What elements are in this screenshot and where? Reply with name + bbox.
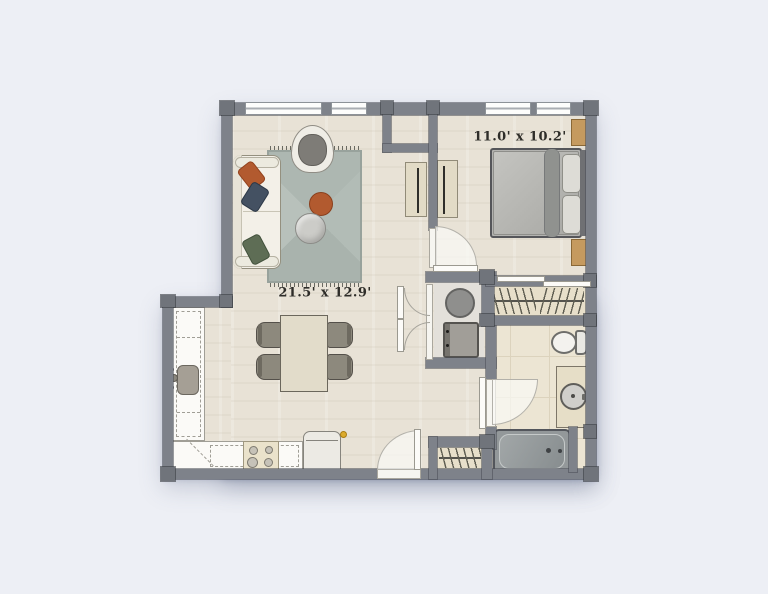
- bed-pillow: [562, 195, 581, 234]
- wall-hall-bedroom: [429, 112, 437, 230]
- bathroom-door-leaf: [479, 377, 486, 429]
- wall-junction: [381, 101, 393, 114]
- stove-burner: [249, 446, 258, 455]
- entry-doorway: [377, 469, 421, 479]
- wall-junction: [584, 314, 596, 326]
- refrigerator-door-seam: [306, 440, 338, 441]
- wall-junction: [480, 270, 494, 284]
- bathtub-basin: [499, 434, 565, 469]
- dining-chair: [327, 322, 353, 348]
- bedroom-door-leaf: [433, 265, 478, 272]
- laundry-door-leaf: [397, 286, 404, 319]
- bed-blanket-fold: [544, 149, 560, 237]
- living-dining-dimension-label: 21.5' x 12.9': [278, 286, 371, 301]
- toilet-bowl: [551, 331, 577, 354]
- window: [245, 102, 322, 115]
- dryer-control-panel: [445, 324, 450, 356]
- wall-right: [586, 103, 596, 479]
- closet-sliding-door: [543, 281, 591, 287]
- wall-tub-divider: [569, 427, 577, 472]
- dining-chair: [256, 354, 282, 380]
- window: [536, 102, 571, 115]
- wall-left-upper: [222, 103, 232, 307]
- wall-corner: [220, 295, 232, 307]
- window: [485, 102, 531, 115]
- dining-chair: [256, 322, 282, 348]
- wall-entry-closet-left: [429, 437, 437, 479]
- wall-corner: [584, 101, 598, 115]
- stove-burner: [265, 446, 273, 454]
- wall-bathroom-west-upper: [486, 318, 496, 379]
- refrigerator-handle-dot: [340, 431, 347, 438]
- entry-door-leaf: [414, 429, 421, 470]
- cabinet-divider-dash: [177, 412, 200, 413]
- stove-burner: [247, 457, 258, 468]
- window: [331, 102, 367, 115]
- refrigerator: [303, 431, 341, 472]
- closet-hangers: [492, 288, 536, 314]
- wall-corner: [161, 295, 175, 307]
- wall-corner: [584, 467, 598, 481]
- coffee-table: [295, 213, 326, 244]
- dining-chair: [327, 354, 353, 380]
- wall-corner: [220, 101, 234, 115]
- wall-left-lower: [163, 297, 173, 479]
- wall-junction: [584, 425, 596, 438]
- wardrobe-panel: [405, 162, 427, 217]
- stove-burner: [264, 458, 273, 467]
- cabinet-divider-dash: [177, 337, 200, 338]
- sink-drain: [571, 394, 575, 398]
- washer: [445, 288, 475, 318]
- sofa-cushion-divider: [243, 211, 280, 212]
- wall-junction: [480, 435, 494, 448]
- wall-junction: [427, 101, 439, 114]
- dining-table: [280, 315, 328, 392]
- bathtub-drain: [546, 448, 551, 453]
- dryer-knob: [446, 344, 449, 347]
- laundry-door-leaf: [397, 319, 404, 352]
- wall-corner: [161, 467, 175, 481]
- kitchen-sink: [177, 365, 199, 395]
- dryer-knob: [446, 330, 449, 333]
- floor-plan-canvas: 21.5' x 12.9' 11.0' x 10.2': [0, 0, 768, 594]
- closet-sliding-door: [497, 276, 545, 282]
- wall-junction: [480, 314, 494, 326]
- wall-closet-south: [486, 316, 596, 325]
- bedroom-dimension-label: 11.0' x 10.2': [473, 130, 566, 145]
- bathtub-faucet-dot: [558, 449, 562, 453]
- closet-hangers: [439, 448, 481, 468]
- closet-hangers: [540, 288, 584, 314]
- bed-pillow: [562, 154, 581, 193]
- wardrobe-panel: [437, 160, 458, 218]
- armchair-seat: [298, 134, 327, 166]
